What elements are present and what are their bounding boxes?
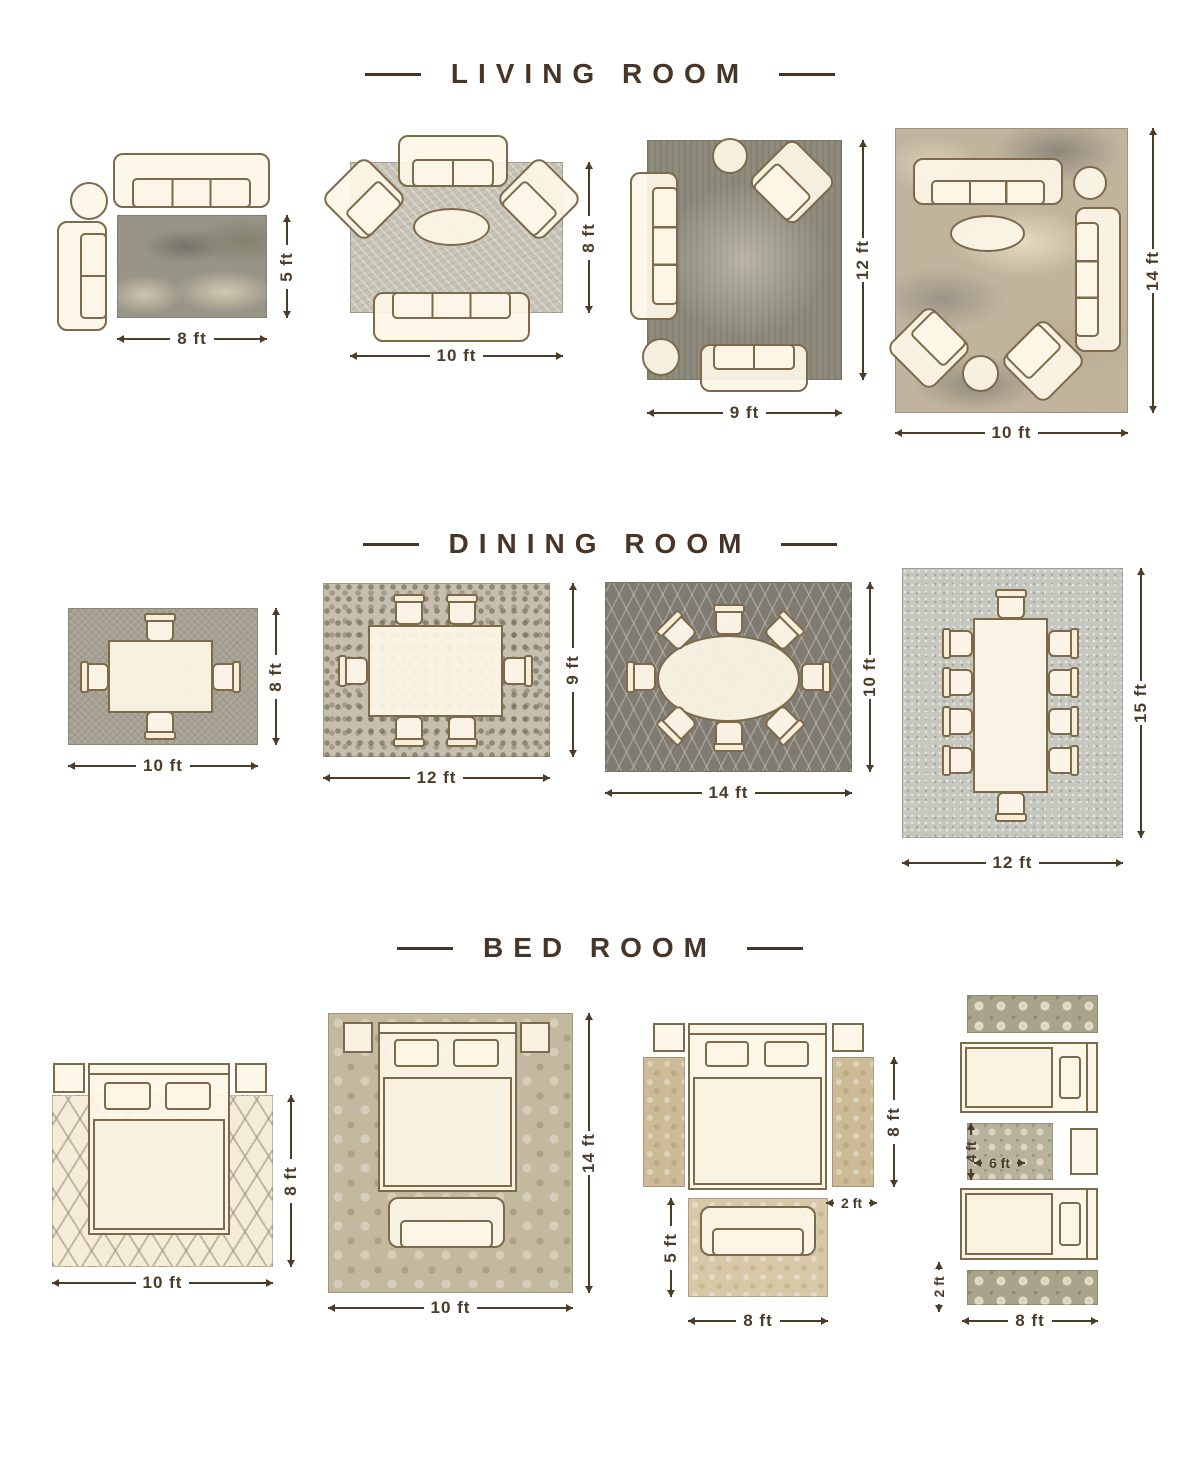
pillow: [764, 1041, 809, 1067]
dining-chair: [1048, 708, 1074, 735]
dimension-line: [68, 765, 136, 767]
dimension-label: 10 ft: [848, 666, 892, 688]
runner-width-dimension: 2 ft: [826, 1192, 882, 1214]
dimension-label: 5 ft: [265, 256, 309, 278]
three-seat-sofa: [913, 158, 1063, 205]
beds-width-dimension: 8 ft: [962, 1310, 1098, 1332]
dimension-line: [688, 1320, 736, 1322]
dining-table: [973, 618, 1048, 793]
loveseat: [398, 135, 508, 187]
three-seat-sofa-vertical: [1075, 207, 1121, 352]
bedroom-bench: [388, 1197, 505, 1248]
nightstand: [235, 1063, 267, 1093]
dimension-label: 8 ft: [1008, 1311, 1052, 1331]
dimension-label: 9 ft: [551, 659, 595, 681]
sofa-cushions: [412, 159, 495, 187]
dimension-line: [1017, 1162, 1025, 1164]
section-title-bed-room: BED ROOM: [0, 932, 1200, 964]
dimension-label: 14 ft: [702, 783, 756, 803]
section-title-dining-room: DINING ROOM: [0, 528, 1200, 560]
bed: [378, 1022, 517, 1192]
dimension-line: [962, 1320, 1008, 1322]
dimension-line: [895, 432, 985, 434]
dimension-line: [275, 699, 277, 746]
two-seat-sofa: [57, 221, 107, 331]
dimension-line: [869, 1202, 877, 1204]
sofa-cushions: [80, 233, 107, 320]
blanket: [693, 1077, 822, 1185]
dimension-line: [862, 140, 864, 238]
dimension-line: [290, 1095, 292, 1159]
living-rug-8x5: [117, 215, 267, 318]
dimension-line: [214, 338, 267, 340]
dimension-line: [893, 1144, 895, 1187]
dimension-line: [286, 215, 288, 245]
nightstand: [653, 1023, 685, 1052]
rug-height-dimension: 10 ft: [859, 582, 881, 772]
dimension-label: 15 ft: [1119, 692, 1163, 714]
title-dash: [779, 73, 835, 76]
pillow: [165, 1082, 212, 1111]
nightstand: [1070, 1128, 1098, 1175]
dining-chair: [947, 669, 973, 696]
title-dash: [747, 947, 803, 950]
dining-chair: [146, 618, 174, 642]
nightstand: [53, 1063, 85, 1093]
pillow: [453, 1039, 499, 1067]
rug-height-dimension: 9 ft: [562, 583, 584, 757]
rug-width-dimension: 14 ft: [605, 782, 852, 804]
round-ottoman: [642, 338, 680, 376]
dimension-label: 10 ft: [424, 1298, 478, 1318]
headboard: [1086, 1042, 1098, 1113]
dining-chair: [997, 792, 1025, 817]
pillow: [104, 1082, 151, 1111]
dining-chair: [631, 663, 656, 691]
rug-height-dimension: 8 ft: [280, 1095, 302, 1267]
bedroom-bench: [700, 1206, 816, 1256]
dining-chair: [503, 657, 528, 685]
sofa-cushions: [712, 1228, 804, 1256]
section-title-text: LIVING ROOM: [451, 58, 749, 90]
sofa-cushions: [132, 178, 251, 208]
oval-coffee-table: [950, 215, 1025, 252]
dimension-label: 14 ft: [567, 1142, 611, 1164]
dining-chair: [212, 663, 236, 691]
dining-chair: [85, 663, 109, 691]
dimension-label: 2 ft: [922, 1276, 956, 1298]
dimension-line: [826, 1202, 834, 1204]
dining-chair: [801, 663, 826, 691]
rug-height-dimension: 15 ft: [1130, 568, 1152, 838]
dimension-label: 8 ft: [170, 329, 214, 349]
sofa-cushions: [931, 180, 1045, 205]
pillow: [394, 1039, 440, 1067]
title-dash: [397, 947, 453, 950]
blanket: [965, 1047, 1053, 1108]
dimension-label: 10 ft: [985, 423, 1039, 443]
dining-table: [368, 625, 503, 717]
dimension-line: [1152, 128, 1154, 249]
title-dash: [365, 73, 421, 76]
dimension-line: [670, 1270, 672, 1298]
twin-bed: [960, 1188, 1098, 1260]
headboard: [378, 1022, 517, 1034]
dining-chair: [715, 721, 743, 747]
dimension-line: [862, 282, 864, 380]
rug-height-dimension: 5 ft: [276, 215, 298, 318]
pillow: [705, 1041, 750, 1067]
round-side-table: [1073, 166, 1107, 200]
dining-chair: [947, 708, 973, 735]
sofa-cushions: [400, 1220, 493, 1248]
bed: [688, 1023, 827, 1190]
dimension-label: 14 ft: [1131, 260, 1175, 282]
dimension-line: [1140, 568, 1142, 681]
rug-width-dimension: 10 ft: [68, 755, 258, 777]
rug-width-dimension: 8 ft: [117, 328, 267, 350]
round-side-table: [712, 138, 748, 174]
twin-runner-rug: [967, 995, 1098, 1033]
bench-rug-width-dimension: 8 ft: [688, 1310, 828, 1332]
sofa-cushions: [713, 344, 794, 370]
dining-chair: [997, 594, 1025, 619]
dimension-line: [117, 338, 170, 340]
blanket: [383, 1077, 512, 1187]
three-seat-sofa: [373, 292, 530, 342]
dimension-label: 10 ft: [136, 1273, 190, 1293]
dimension-label: 8 ft: [736, 1311, 780, 1331]
pillow: [1059, 1202, 1082, 1246]
rug-height-dimension: 14 ft: [1142, 128, 1164, 413]
section-title-text: DINING ROOM: [449, 528, 752, 560]
dimension-line: [670, 1198, 672, 1226]
dimension-line: [189, 1282, 273, 1284]
dimension-line: [938, 1262, 940, 1270]
dining-chair: [947, 630, 973, 657]
dimension-line: [869, 582, 871, 655]
rug-width-dimension: 10 ft: [895, 422, 1128, 444]
three-seat-sofa: [113, 153, 270, 208]
dimension-line: [1038, 432, 1128, 434]
dimension-line: [286, 289, 288, 319]
dimension-line: [588, 162, 590, 216]
dimension-line: [938, 1304, 940, 1312]
sofa-cushions: [652, 187, 678, 305]
dimension-line: [275, 608, 277, 655]
dimension-line: [483, 355, 563, 357]
dimension-line: [477, 1307, 573, 1309]
round-ottoman: [962, 355, 999, 392]
rug-width-dimension: 9 ft: [647, 402, 842, 424]
loveseat: [700, 344, 808, 392]
runner-height-dimension: 2 ft: [928, 1262, 950, 1312]
dimension-line: [1052, 1320, 1098, 1322]
dimension-line: [190, 765, 258, 767]
round-side-table: [70, 182, 108, 220]
dimension-line: [588, 1013, 590, 1131]
dimension-label: 9 ft: [723, 403, 767, 423]
twin-bed: [960, 1042, 1098, 1113]
three-seat-sofa-vertical: [630, 172, 678, 320]
headboard: [1086, 1188, 1098, 1260]
dimension-label: 10 ft: [136, 756, 190, 776]
rug-height-dimension: 8 ft: [265, 608, 287, 745]
dimension-label: 12 ft: [986, 853, 1040, 873]
bench-rug-height-dimension: 5 ft: [660, 1198, 682, 1297]
dining-chair: [448, 599, 476, 625]
rug-width-dimension: 10 ft: [52, 1272, 273, 1294]
title-dash: [363, 543, 419, 546]
dimension-line: [350, 355, 430, 357]
dimension-line: [869, 699, 871, 772]
dining-chair: [343, 657, 368, 685]
dimension-line: [902, 862, 986, 864]
twin-runner-rug: [967, 1270, 1098, 1305]
dimension-label: 5 ft: [649, 1237, 693, 1259]
dimension-line: [755, 792, 852, 794]
dimension-line: [766, 412, 842, 414]
dimension-label: 8 ft: [567, 227, 611, 249]
title-dash: [781, 543, 837, 546]
section-title-text: BED ROOM: [483, 932, 717, 964]
dimension-label: 8 ft: [872, 1111, 916, 1133]
dimension-line: [588, 260, 590, 314]
dimension-line: [1152, 293, 1154, 414]
dining-chair: [395, 716, 423, 742]
headboard: [88, 1063, 230, 1075]
dimension-line: [970, 1123, 972, 1135]
dimension-line: [572, 692, 574, 757]
dimension-label: 8 ft: [269, 1170, 313, 1192]
rug-width-dimension: 10 ft: [350, 345, 563, 367]
sofa-cushions: [1075, 222, 1099, 338]
runner-height-dimension: 8 ft: [883, 1057, 905, 1187]
section-title-living-room: LIVING ROOM: [0, 58, 1200, 90]
dimension-line: [780, 1320, 828, 1322]
dimension-line: [52, 1282, 136, 1284]
dimension-label: 2 ft: [834, 1195, 869, 1211]
nightstand: [832, 1023, 864, 1052]
dining-chair: [448, 716, 476, 742]
rug-width-dimension: 12 ft: [902, 852, 1123, 874]
dimension-line: [463, 777, 550, 779]
dining-chair: [395, 599, 423, 625]
dining-chair: [715, 609, 743, 635]
dimension-line: [1039, 862, 1123, 864]
blanket: [965, 1193, 1053, 1255]
dining-chair: [146, 711, 174, 735]
bedside-runner-rug: [832, 1057, 874, 1187]
pillow: [1059, 1056, 1082, 1099]
dimension-line: [328, 1307, 424, 1309]
dining-chair: [1048, 747, 1074, 774]
rug-height-dimension: 14 ft: [578, 1013, 600, 1293]
dimension-label: 12 ft: [841, 249, 885, 271]
dimension-line: [970, 1169, 972, 1181]
rug-width-dimension: 10 ft: [328, 1297, 573, 1319]
dimension-line: [974, 1162, 982, 1164]
rug-size-guide: LIVING ROOM 8 ft 5 ft 10 ft 8 ft 9 ft 12…: [0, 0, 1200, 1467]
rug-height-dimension: 8 ft: [578, 162, 600, 313]
nightstand: [520, 1022, 550, 1053]
dining-chair: [1048, 630, 1074, 657]
dimension-line: [290, 1203, 292, 1267]
dining-chair: [1048, 669, 1074, 696]
rug-height-dimension: 12 ft: [852, 140, 874, 380]
dimension-line: [893, 1057, 895, 1100]
dimension-line: [572, 583, 574, 648]
dimension-label: 12 ft: [410, 768, 464, 788]
dimension-label: 6 ft: [982, 1155, 1017, 1171]
dimension-line: [588, 1175, 590, 1293]
blanket: [93, 1119, 225, 1230]
dining-chair: [947, 747, 973, 774]
dimension-line: [605, 792, 702, 794]
dimension-line: [323, 777, 410, 779]
dimension-label: 8 ft: [254, 666, 298, 688]
nightstand: [343, 1022, 373, 1053]
rug-width-dimension: 12 ft: [323, 767, 550, 789]
oval-coffee-table: [413, 208, 490, 246]
dimension-line: [647, 412, 723, 414]
bedside-runner-rug: [643, 1057, 685, 1187]
dimension-label: 10 ft: [430, 346, 484, 366]
sofa-cushions: [392, 292, 511, 319]
dining-table: [108, 640, 213, 713]
center-rug-width-dimension: 6 ft: [974, 1152, 1050, 1174]
bed: [88, 1063, 230, 1235]
dimension-line: [1140, 725, 1142, 838]
headboard: [688, 1023, 827, 1035]
